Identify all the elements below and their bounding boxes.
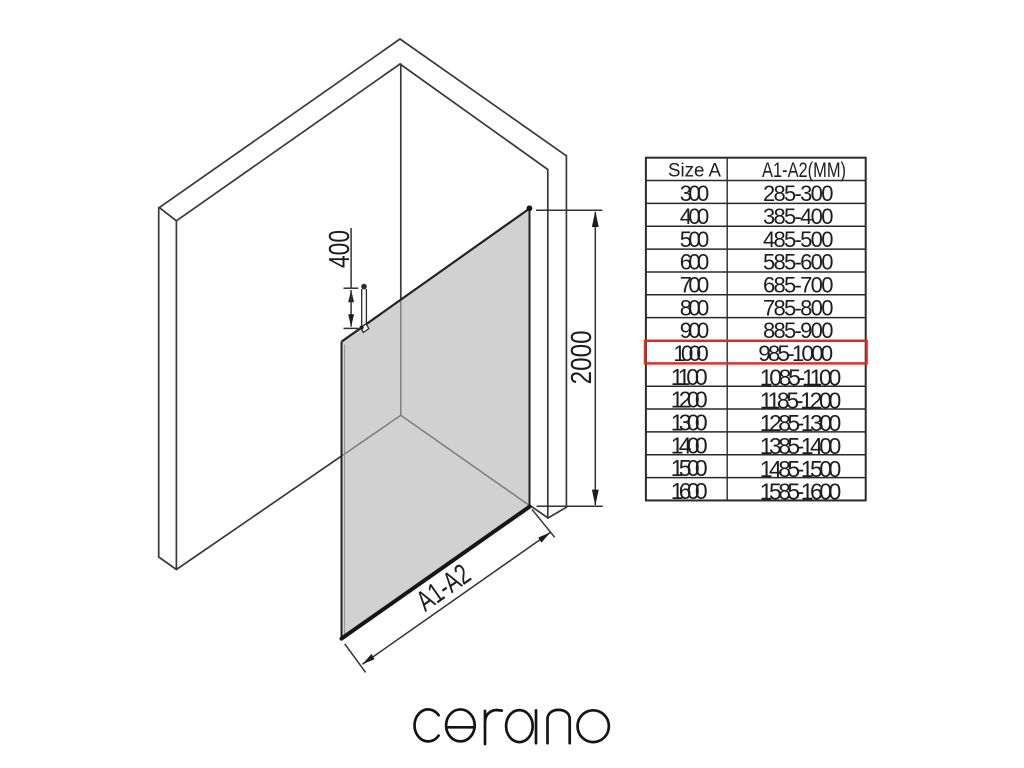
svg-text:700: 700: [680, 273, 710, 298]
svg-text:300: 300: [680, 181, 710, 206]
svg-text:900: 900: [680, 318, 710, 343]
svg-text:500: 500: [680, 227, 710, 252]
svg-text:485-500: 485-500: [763, 227, 834, 252]
svg-text:1600: 1600: [671, 478, 708, 504]
svg-text:A1-A2(MM): A1-A2(MM): [762, 159, 846, 182]
svg-text:2000: 2000: [566, 330, 598, 384]
svg-text:1585-1600: 1585-1600: [760, 479, 842, 505]
svg-text:Size A: Size A: [668, 160, 721, 181]
svg-text:785-800: 785-800: [763, 295, 834, 320]
svg-text:685-700: 685-700: [763, 273, 834, 298]
svg-text:1000: 1000: [673, 341, 709, 366]
svg-text:285-300: 285-300: [763, 181, 834, 206]
svg-text:800: 800: [680, 295, 710, 320]
svg-text:600: 600: [680, 250, 710, 275]
svg-text:400: 400: [680, 204, 710, 229]
svg-text:400: 400: [324, 230, 356, 268]
svg-text:385-400: 385-400: [763, 204, 834, 229]
svg-text:585-600: 585-600: [763, 250, 834, 275]
svg-text:885-900: 885-900: [763, 318, 834, 343]
